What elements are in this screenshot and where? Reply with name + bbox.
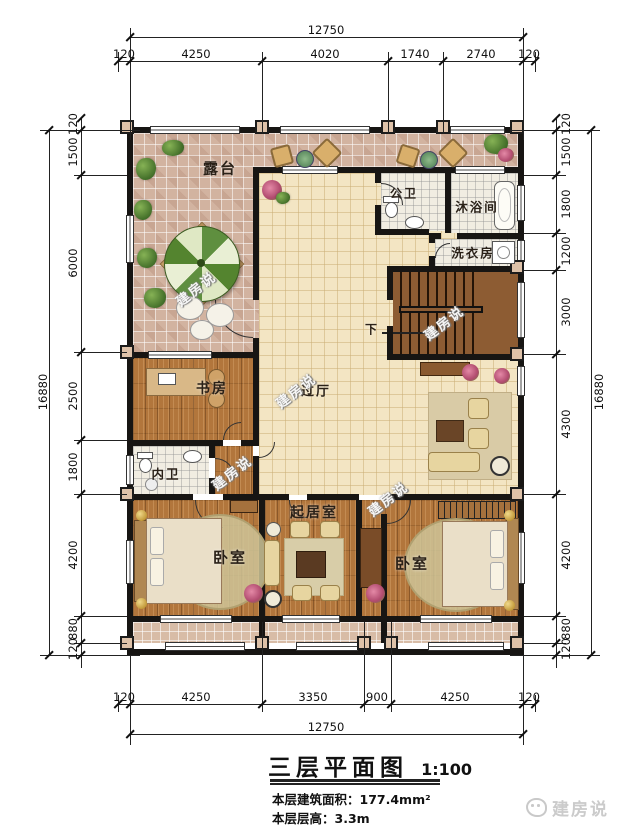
title-underline-thin bbox=[270, 783, 440, 785]
extension-line bbox=[262, 52, 263, 134]
dim-label: 120 bbox=[66, 113, 80, 135]
wall bbox=[307, 494, 359, 500]
wall bbox=[457, 233, 518, 239]
dim-label: 12750 bbox=[308, 720, 345, 734]
washing-machine-drum bbox=[497, 246, 510, 259]
window bbox=[428, 642, 504, 651]
extension-line bbox=[262, 622, 263, 712]
window bbox=[517, 282, 525, 338]
window bbox=[450, 126, 505, 134]
dim-label: 16880 bbox=[592, 374, 606, 411]
window bbox=[420, 615, 492, 623]
window bbox=[455, 166, 505, 174]
plan-title: 三层平面图 bbox=[268, 755, 408, 781]
parasol-center bbox=[197, 259, 205, 267]
side-table bbox=[264, 590, 282, 608]
dim-line-left-segments bbox=[81, 118, 82, 668]
computer bbox=[158, 373, 176, 385]
wall bbox=[241, 440, 259, 446]
dim-label: 4250 bbox=[440, 690, 469, 704]
window bbox=[517, 240, 525, 262]
extension-line bbox=[524, 494, 566, 495]
dim-label: 120 bbox=[66, 638, 80, 660]
extension-line bbox=[130, 28, 131, 140]
dim-line-top-total bbox=[130, 37, 523, 38]
extension-line bbox=[524, 354, 566, 355]
pillow bbox=[150, 558, 164, 586]
dim-label: 120 bbox=[113, 690, 135, 704]
dim-label: 120 bbox=[518, 690, 540, 704]
dim-label: 4300 bbox=[559, 409, 573, 438]
wall bbox=[375, 229, 429, 235]
dim-line-right-segments bbox=[556, 118, 557, 668]
bathtub-inner bbox=[498, 188, 511, 222]
plan-scale: 1:100 bbox=[421, 760, 472, 779]
column bbox=[510, 487, 524, 501]
window bbox=[148, 351, 212, 359]
window bbox=[517, 185, 525, 221]
public-bath-label: 公卫 bbox=[390, 185, 418, 202]
title-block: 三层平面图 1:100 bbox=[268, 748, 528, 782]
dim-label: 1740 bbox=[400, 47, 429, 61]
living-label: 起居室 bbox=[290, 502, 338, 522]
dim-label: 1800 bbox=[66, 452, 80, 481]
sink bbox=[405, 216, 424, 229]
pillow bbox=[490, 562, 504, 590]
coffee-table bbox=[296, 551, 326, 578]
dresser bbox=[230, 500, 258, 513]
window bbox=[282, 615, 340, 623]
window bbox=[150, 126, 240, 134]
logo-eye bbox=[531, 804, 534, 807]
extension-line bbox=[40, 130, 140, 131]
dim-label: 1500 bbox=[66, 137, 80, 166]
side-table bbox=[490, 456, 510, 476]
dim-line-top-segments bbox=[118, 61, 535, 62]
wall bbox=[429, 233, 435, 243]
sink bbox=[183, 450, 202, 463]
armchair bbox=[290, 521, 310, 538]
column bbox=[120, 120, 134, 134]
extension-line bbox=[524, 270, 566, 271]
toilet-bowl bbox=[385, 202, 398, 218]
floor-plan-canvas: 下 bbox=[0, 0, 640, 833]
column bbox=[510, 120, 524, 134]
dim-label: 2500 bbox=[66, 381, 80, 410]
armchair bbox=[468, 428, 489, 449]
dim-label: 2740 bbox=[466, 47, 495, 61]
armchair bbox=[292, 585, 312, 601]
bed-post bbox=[136, 598, 147, 609]
dim-label: 120 bbox=[113, 47, 135, 61]
dim-label: 880 bbox=[66, 618, 80, 640]
inner-bath-label: 内卫 bbox=[151, 464, 180, 483]
window bbox=[126, 540, 134, 584]
dim-label: 3350 bbox=[298, 690, 327, 704]
pillow bbox=[150, 527, 164, 555]
dim-label: 120 bbox=[518, 47, 540, 61]
pillow bbox=[490, 530, 504, 558]
wall bbox=[387, 266, 393, 300]
wall bbox=[127, 494, 193, 500]
dim-line-bottom-total bbox=[130, 734, 523, 735]
brand-logo: 建房说 bbox=[526, 795, 609, 820]
bedroom-right-label: 卧室 bbox=[395, 553, 429, 574]
area-value: 177.4mm² bbox=[360, 792, 431, 807]
extension-line bbox=[364, 622, 365, 712]
passage-cabinet bbox=[360, 528, 382, 588]
window bbox=[517, 366, 525, 396]
wall bbox=[253, 167, 259, 300]
dim-label: 4020 bbox=[310, 47, 339, 61]
wall bbox=[387, 266, 518, 272]
wall bbox=[387, 354, 518, 360]
window bbox=[282, 166, 338, 174]
height-value: 3.3m bbox=[335, 811, 370, 826]
armchair bbox=[320, 585, 340, 601]
side-table bbox=[266, 522, 281, 537]
armchair bbox=[468, 398, 489, 419]
extension-line bbox=[524, 175, 566, 176]
armchair bbox=[320, 521, 340, 538]
dim-line-bottom-segments bbox=[118, 704, 535, 705]
wall bbox=[445, 173, 451, 233]
patio-table bbox=[420, 151, 438, 169]
bed-post bbox=[504, 600, 515, 611]
extension-line bbox=[40, 655, 140, 656]
coffee-table bbox=[436, 420, 464, 442]
dim-label: 4250 bbox=[181, 47, 210, 61]
laundry-label: 洗衣房 bbox=[451, 243, 495, 262]
extension-line bbox=[443, 52, 444, 134]
shower-label: 沐浴间 bbox=[455, 197, 499, 216]
dim-label: 3000 bbox=[559, 297, 573, 326]
dim-label: 6000 bbox=[66, 248, 80, 277]
terrace-chair-white bbox=[190, 320, 214, 340]
dim-label: 900 bbox=[366, 690, 388, 704]
patio-table bbox=[296, 150, 314, 168]
logo-face-icon bbox=[526, 798, 547, 817]
study-label: 书房 bbox=[196, 378, 228, 398]
dim-label: 1200 bbox=[559, 236, 573, 265]
dim-label: 120 bbox=[559, 113, 573, 135]
extension-line bbox=[524, 233, 566, 234]
toilet-bowl bbox=[139, 458, 152, 473]
flower-pot bbox=[244, 584, 263, 603]
window bbox=[126, 215, 134, 263]
flower-pot bbox=[462, 364, 479, 381]
logo-eye bbox=[537, 804, 540, 807]
extension-line bbox=[391, 622, 392, 712]
wall bbox=[209, 446, 215, 458]
height-label: 本层层高： bbox=[272, 811, 335, 826]
height-line: 本层层高：3.3m bbox=[272, 808, 370, 827]
dim-label: 4250 bbox=[181, 690, 210, 704]
dim-label: 4200 bbox=[559, 540, 573, 569]
window bbox=[160, 615, 232, 623]
window bbox=[280, 126, 370, 134]
extension-line bbox=[523, 28, 524, 140]
column bbox=[510, 636, 524, 650]
dim-label: 4200 bbox=[66, 540, 80, 569]
sofa bbox=[264, 540, 280, 586]
extension-line bbox=[388, 52, 389, 134]
dim-label: 1800 bbox=[559, 189, 573, 218]
logo-text: 建房说 bbox=[552, 795, 609, 820]
column bbox=[510, 347, 524, 361]
dim-label: 12750 bbox=[308, 23, 345, 37]
bed-post bbox=[504, 510, 515, 521]
extension-line bbox=[524, 616, 566, 617]
flower-pot bbox=[366, 584, 385, 603]
wall bbox=[375, 173, 381, 183]
window bbox=[165, 642, 245, 651]
dim-label: 16880 bbox=[36, 374, 50, 411]
window bbox=[126, 455, 134, 485]
title-underline-thick bbox=[270, 779, 440, 782]
terrace-label: 露台 bbox=[203, 158, 237, 179]
dim-label: 880 bbox=[559, 618, 573, 640]
flower-pot bbox=[494, 368, 510, 384]
area-label: 本层建筑面积： bbox=[272, 792, 360, 807]
bed-post bbox=[136, 510, 147, 521]
window bbox=[296, 642, 358, 651]
sofa bbox=[428, 452, 480, 472]
dim-label: 120 bbox=[559, 638, 573, 660]
area-line: 本层建筑面积：177.4mm² bbox=[272, 789, 431, 808]
bedroom-left-label: 卧室 bbox=[213, 547, 247, 568]
dim-label: 1500 bbox=[559, 137, 573, 166]
flower-pot bbox=[498, 148, 514, 162]
